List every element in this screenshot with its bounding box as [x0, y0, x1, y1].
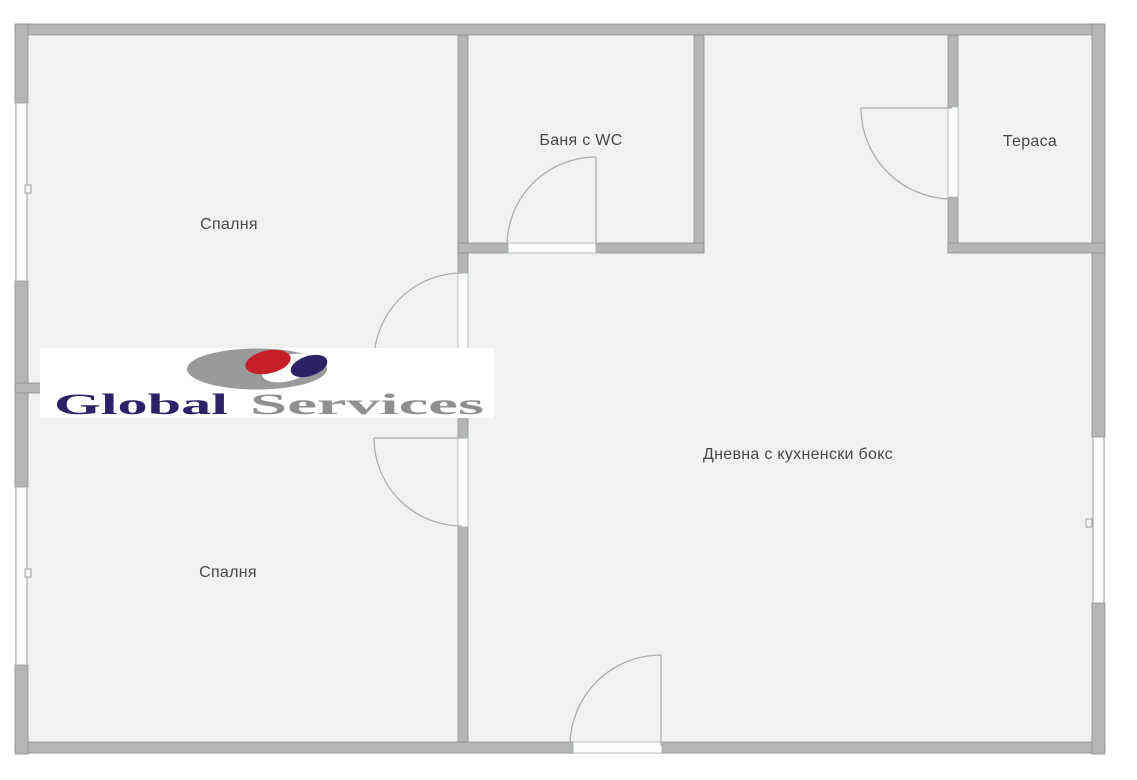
floor-plan-svg: Спалня Баня с WC Тераса Дневна с кухненс…: [0, 0, 1137, 780]
wall-central-a: [458, 35, 468, 273]
wall-right-exterior-a: [1092, 24, 1105, 437]
door-opening-terrace: [948, 107, 958, 197]
wall-terrace-left-a: [948, 35, 958, 107]
floor-plan-page: Спалня Баня с WC Тераса Дневна с кухненс…: [0, 0, 1137, 780]
wall-bottom-exterior-left: [15, 742, 573, 753]
watermark-logo: Global Services: [40, 346, 494, 421]
wall-bathroom-bottom-left: [458, 243, 508, 253]
room-label-terrace: Тераса: [1003, 133, 1057, 150]
wall-right-exterior-b: [1092, 603, 1105, 754]
wall-left-exterior-a: [15, 24, 28, 103]
wall-terrace-bottom: [948, 243, 1105, 253]
door-opening-bedroom-bottom: [458, 438, 468, 527]
logo-text-global: Global: [54, 388, 228, 421]
wall-left-exterior-c: [15, 665, 28, 754]
window-living-room: [1093, 437, 1104, 603]
door-opening-bedroom-top: [458, 273, 468, 360]
wall-bathroom-right: [694, 35, 704, 253]
window-tick-living-room: [1086, 519, 1092, 527]
window-tick-bedroom-top: [25, 185, 31, 193]
wall-bathroom-bottom-right: [596, 243, 704, 253]
wall-central-c: [458, 527, 468, 742]
wall-top-exterior: [15, 24, 1105, 35]
room-label-bathroom: Баня с WC: [539, 132, 622, 149]
room-label-living-room: Дневна с кухненски бокс: [703, 446, 893, 463]
room-label-bedroom-top: Спалня: [200, 216, 258, 233]
wall-bottom-exterior-right: [662, 742, 1105, 753]
logo-text-services: Services: [250, 388, 484, 421]
door-opening-entrance: [573, 742, 662, 753]
room-label-bedroom-bottom: Спалня: [199, 564, 257, 581]
window-tick-bedroom-bottom: [25, 569, 31, 577]
door-opening-bathroom: [508, 243, 596, 253]
